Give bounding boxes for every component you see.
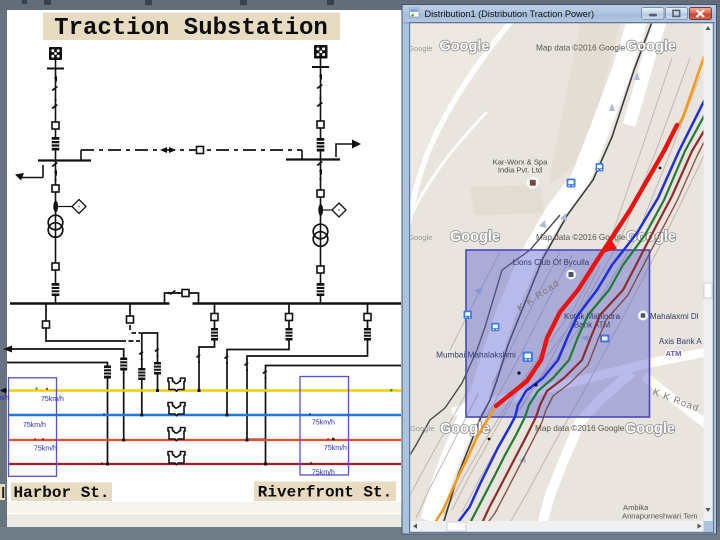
svg-text:75km/h: 75km/h [23, 422, 46, 429]
svg-text:Google: Google [440, 39, 490, 55]
svg-text:Google: Google [625, 421, 675, 437]
svg-text:Map data ©2016 Google: Map data ©2016 Google [536, 44, 626, 53]
svg-text:Google: Google [626, 39, 676, 55]
svg-text:Google: Google [450, 229, 500, 245]
svg-text:Map data ©2016 Google: Map data ©2016 Google [535, 424, 625, 433]
svg-text:75km/h: 75km/h [0, 395, 9, 402]
svg-text:Lions Club Of Byculla: Lions Club Of Byculla [513, 258, 590, 267]
svg-text:Harbor St.: Harbor St. [13, 484, 109, 502]
svg-text:Google: Google [408, 44, 433, 53]
svg-text:75km/h: 75km/h [324, 445, 347, 452]
svg-text:Mumbai Mahalakshmi: Mumbai Mahalakshmi [436, 351, 516, 360]
svg-text:75km/h: 75km/h [34, 446, 57, 453]
svg-text:Google: Google [408, 233, 433, 242]
svg-text:Annapurneshwari Tem: Annapurneshwari Tem [622, 512, 697, 521]
svg-text:Mahalaxmi Dl: Mahalaxmi Dl [650, 312, 699, 321]
svg-text:Riverfront St.: Riverfront St. [258, 484, 392, 502]
svg-text:India Pvt. Ltd: India Pvt. Ltd [498, 166, 542, 175]
svg-text:75km/h: 75km/h [312, 470, 335, 477]
svg-text:Distribution1 (Distribution Tr: Distribution1 (Distribution Traction Pow… [425, 9, 595, 19]
svg-text:75km/h: 75km/h [312, 420, 335, 427]
svg-text:Traction Substation: Traction Substation [54, 15, 328, 42]
svg-text:Google: Google [410, 424, 435, 433]
svg-text:75km/h: 75km/h [41, 396, 64, 403]
svg-text:ATM: ATM [666, 349, 682, 358]
svg-text:Axis Bank A: Axis Bank A [659, 337, 702, 346]
